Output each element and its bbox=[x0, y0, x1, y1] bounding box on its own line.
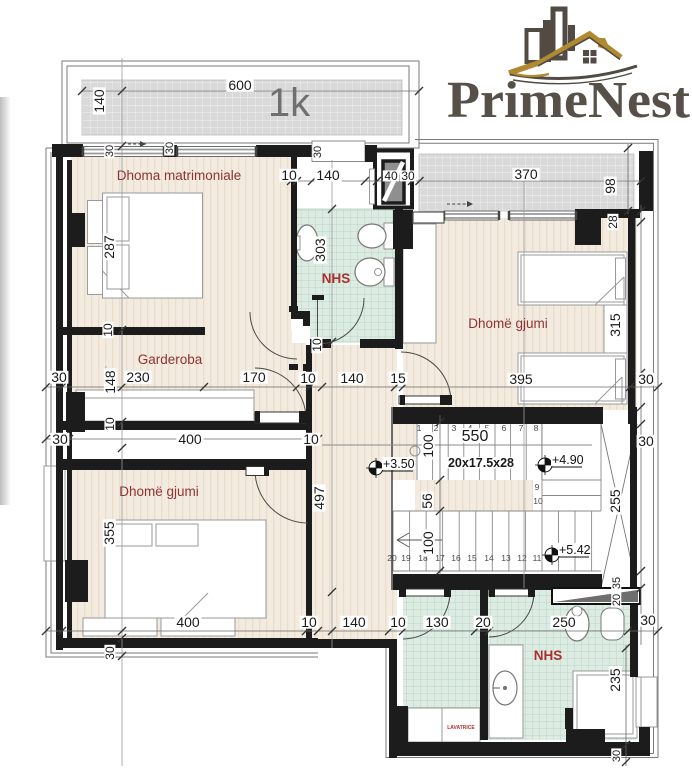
svg-text:16: 16 bbox=[451, 553, 461, 563]
svg-text:130: 130 bbox=[425, 614, 449, 630]
svg-text:140: 140 bbox=[340, 370, 364, 386]
svg-text:30: 30 bbox=[164, 142, 176, 154]
svg-text:+5.42: +5.42 bbox=[559, 543, 591, 557]
svg-text:30: 30 bbox=[401, 169, 415, 183]
svg-text:Dhomë gjumi: Dhomë gjumi bbox=[119, 484, 199, 499]
svg-text:NHS: NHS bbox=[322, 271, 351, 286]
svg-text:30: 30 bbox=[103, 646, 117, 660]
svg-text:20: 20 bbox=[475, 614, 491, 630]
svg-text:497: 497 bbox=[311, 486, 327, 510]
svg-text:Dhoma matrimoniale: Dhoma matrimoniale bbox=[117, 168, 242, 183]
svg-text:395: 395 bbox=[509, 371, 533, 387]
svg-text:100: 100 bbox=[420, 434, 436, 458]
svg-text:LAVATRICE: LAVATRICE bbox=[447, 725, 475, 731]
svg-text:315: 315 bbox=[607, 313, 623, 337]
svg-text:303: 303 bbox=[312, 238, 328, 262]
svg-text:140: 140 bbox=[316, 167, 340, 183]
svg-text:10: 10 bbox=[301, 614, 317, 630]
svg-text:10: 10 bbox=[310, 338, 324, 352]
svg-text:10: 10 bbox=[101, 323, 115, 337]
svg-text:NHS: NHS bbox=[534, 648, 563, 663]
svg-text:12: 12 bbox=[517, 553, 527, 563]
svg-text:13: 13 bbox=[501, 553, 511, 563]
svg-text:10: 10 bbox=[300, 370, 316, 386]
svg-text:28: 28 bbox=[606, 215, 620, 229]
svg-text:8: 8 bbox=[534, 423, 539, 433]
svg-text:7: 7 bbox=[519, 423, 524, 433]
svg-text:140: 140 bbox=[91, 89, 107, 113]
svg-text:98: 98 bbox=[602, 178, 618, 194]
svg-text:30: 30 bbox=[312, 146, 324, 158]
svg-text:20: 20 bbox=[611, 594, 623, 606]
svg-text:235: 235 bbox=[607, 668, 623, 692]
svg-text:9: 9 bbox=[535, 482, 540, 492]
svg-text:10: 10 bbox=[390, 614, 406, 630]
svg-text:30: 30 bbox=[52, 431, 68, 447]
svg-text:370: 370 bbox=[514, 166, 538, 182]
svg-text:140: 140 bbox=[342, 614, 366, 630]
svg-text:3: 3 bbox=[452, 423, 457, 433]
svg-text:10: 10 bbox=[103, 417, 117, 431]
svg-text:1k: 1k bbox=[268, 81, 311, 125]
svg-text:Garderoba: Garderoba bbox=[138, 352, 203, 367]
svg-text:10: 10 bbox=[533, 496, 543, 506]
svg-text:30: 30 bbox=[638, 433, 654, 449]
svg-text:PrimeNest: PrimeNest bbox=[447, 72, 691, 129]
svg-text:15: 15 bbox=[390, 370, 406, 386]
svg-text:6: 6 bbox=[502, 423, 507, 433]
svg-text:40: 40 bbox=[384, 169, 398, 183]
svg-text:255: 255 bbox=[607, 489, 623, 513]
svg-text:400: 400 bbox=[178, 431, 202, 447]
svg-text:10: 10 bbox=[281, 167, 297, 183]
svg-text:355: 355 bbox=[101, 521, 117, 545]
svg-text:250: 250 bbox=[552, 614, 576, 630]
svg-text:Dhomë gjumi: Dhomë gjumi bbox=[468, 316, 548, 331]
svg-text:56: 56 bbox=[419, 493, 435, 509]
svg-text:400: 400 bbox=[176, 614, 200, 630]
svg-text:19: 19 bbox=[401, 553, 411, 563]
svg-text:1: 1 bbox=[417, 423, 422, 433]
svg-text:11: 11 bbox=[533, 553, 542, 563]
svg-text:170: 170 bbox=[242, 369, 266, 385]
svg-text:148: 148 bbox=[102, 370, 118, 394]
svg-text:30: 30 bbox=[51, 369, 67, 385]
svg-text:20x17.5x28: 20x17.5x28 bbox=[448, 456, 514, 470]
svg-text:100: 100 bbox=[420, 531, 436, 555]
svg-text:+4.90: +4.90 bbox=[552, 453, 584, 467]
svg-text:14: 14 bbox=[484, 553, 494, 563]
svg-text:600: 600 bbox=[228, 77, 252, 93]
svg-text:230: 230 bbox=[126, 369, 150, 385]
svg-text:15: 15 bbox=[467, 553, 477, 563]
svg-text:30: 30 bbox=[611, 750, 623, 762]
svg-text:+3.50: +3.50 bbox=[383, 457, 415, 471]
svg-text:20: 20 bbox=[387, 553, 397, 563]
svg-text:30: 30 bbox=[640, 612, 656, 628]
svg-text:287: 287 bbox=[101, 235, 117, 259]
svg-text:30: 30 bbox=[104, 145, 116, 157]
svg-text:35: 35 bbox=[611, 577, 623, 589]
svg-text:10: 10 bbox=[303, 431, 319, 447]
svg-text:550: 550 bbox=[462, 428, 489, 445]
svg-text:30: 30 bbox=[638, 371, 654, 387]
